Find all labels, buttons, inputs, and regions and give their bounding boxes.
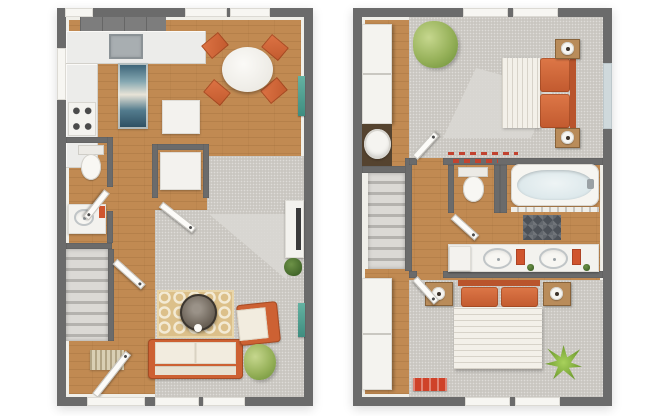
red-accent-trim [448,152,518,155]
front-door-opening [87,397,145,406]
sofa-backrest [155,366,236,375]
wall [66,137,112,143]
upper-cabinets [80,17,166,31]
wall [405,158,412,271]
wall-art [298,303,305,337]
wall [448,165,454,213]
window [57,48,66,100]
tv [296,208,301,250]
lamp [550,287,563,300]
towel [572,249,581,265]
sofa [148,339,243,379]
nightstand [555,39,580,59]
armchair [236,301,281,346]
nightstand [555,128,580,148]
pillow [540,58,570,92]
media-console [285,200,304,258]
dining-table [222,47,273,92]
kitchen-island [162,100,200,134]
lamp [561,131,574,144]
plant [284,258,302,276]
window [465,397,510,406]
runner-rug [118,63,148,129]
towel [516,249,525,265]
duvet [502,58,540,128]
window [203,397,245,406]
wall [500,165,507,213]
vanity-sink [483,248,512,269]
towel [99,206,105,218]
wall [443,271,603,278]
stove [68,102,96,136]
window [65,8,93,17]
wall [107,211,113,243]
vanity-sink [539,248,568,269]
plant [527,264,534,271]
plant [244,344,276,380]
bathtub-basin [517,170,593,200]
red-accent-trim [453,159,498,163]
headboard [458,280,540,286]
window [463,8,508,17]
tub-faucet [587,179,594,189]
floor-plan-image [0,0,652,416]
wall-art [298,76,305,116]
floor-plan-second-floor [353,8,612,406]
plant [583,264,590,271]
window [185,8,227,17]
kitchen-sink [109,34,143,59]
window [513,8,558,17]
toilet [81,154,101,180]
pillow [461,287,498,307]
wall [107,137,113,187]
duvet [454,307,542,369]
window [230,8,270,17]
tile-edge [511,207,599,212]
headboard [570,55,576,131]
hamper [449,246,471,271]
wall [152,144,209,150]
wardrobe-doors [362,278,392,390]
washer [364,129,391,159]
sofa-cushions [155,342,236,364]
window [515,397,560,406]
pillow [501,287,538,307]
laundry-closet-doors [362,24,392,124]
pantry-appliance [160,152,201,190]
wall [203,144,209,198]
nightstand [543,282,571,306]
wall [152,144,158,198]
lamp [561,42,574,55]
toilet [463,176,484,202]
pillow [540,94,570,128]
armchair-cushion [236,307,268,341]
wall [362,166,409,173]
bathtub [511,164,599,206]
red-rug [413,378,447,391]
staircase [368,173,405,269]
table-decor [194,324,202,332]
window [155,397,199,406]
bath-mat [523,215,561,240]
plant [413,21,458,68]
staircase [66,249,108,341]
floor-plan-first-floor [57,8,313,406]
window [603,63,612,129]
